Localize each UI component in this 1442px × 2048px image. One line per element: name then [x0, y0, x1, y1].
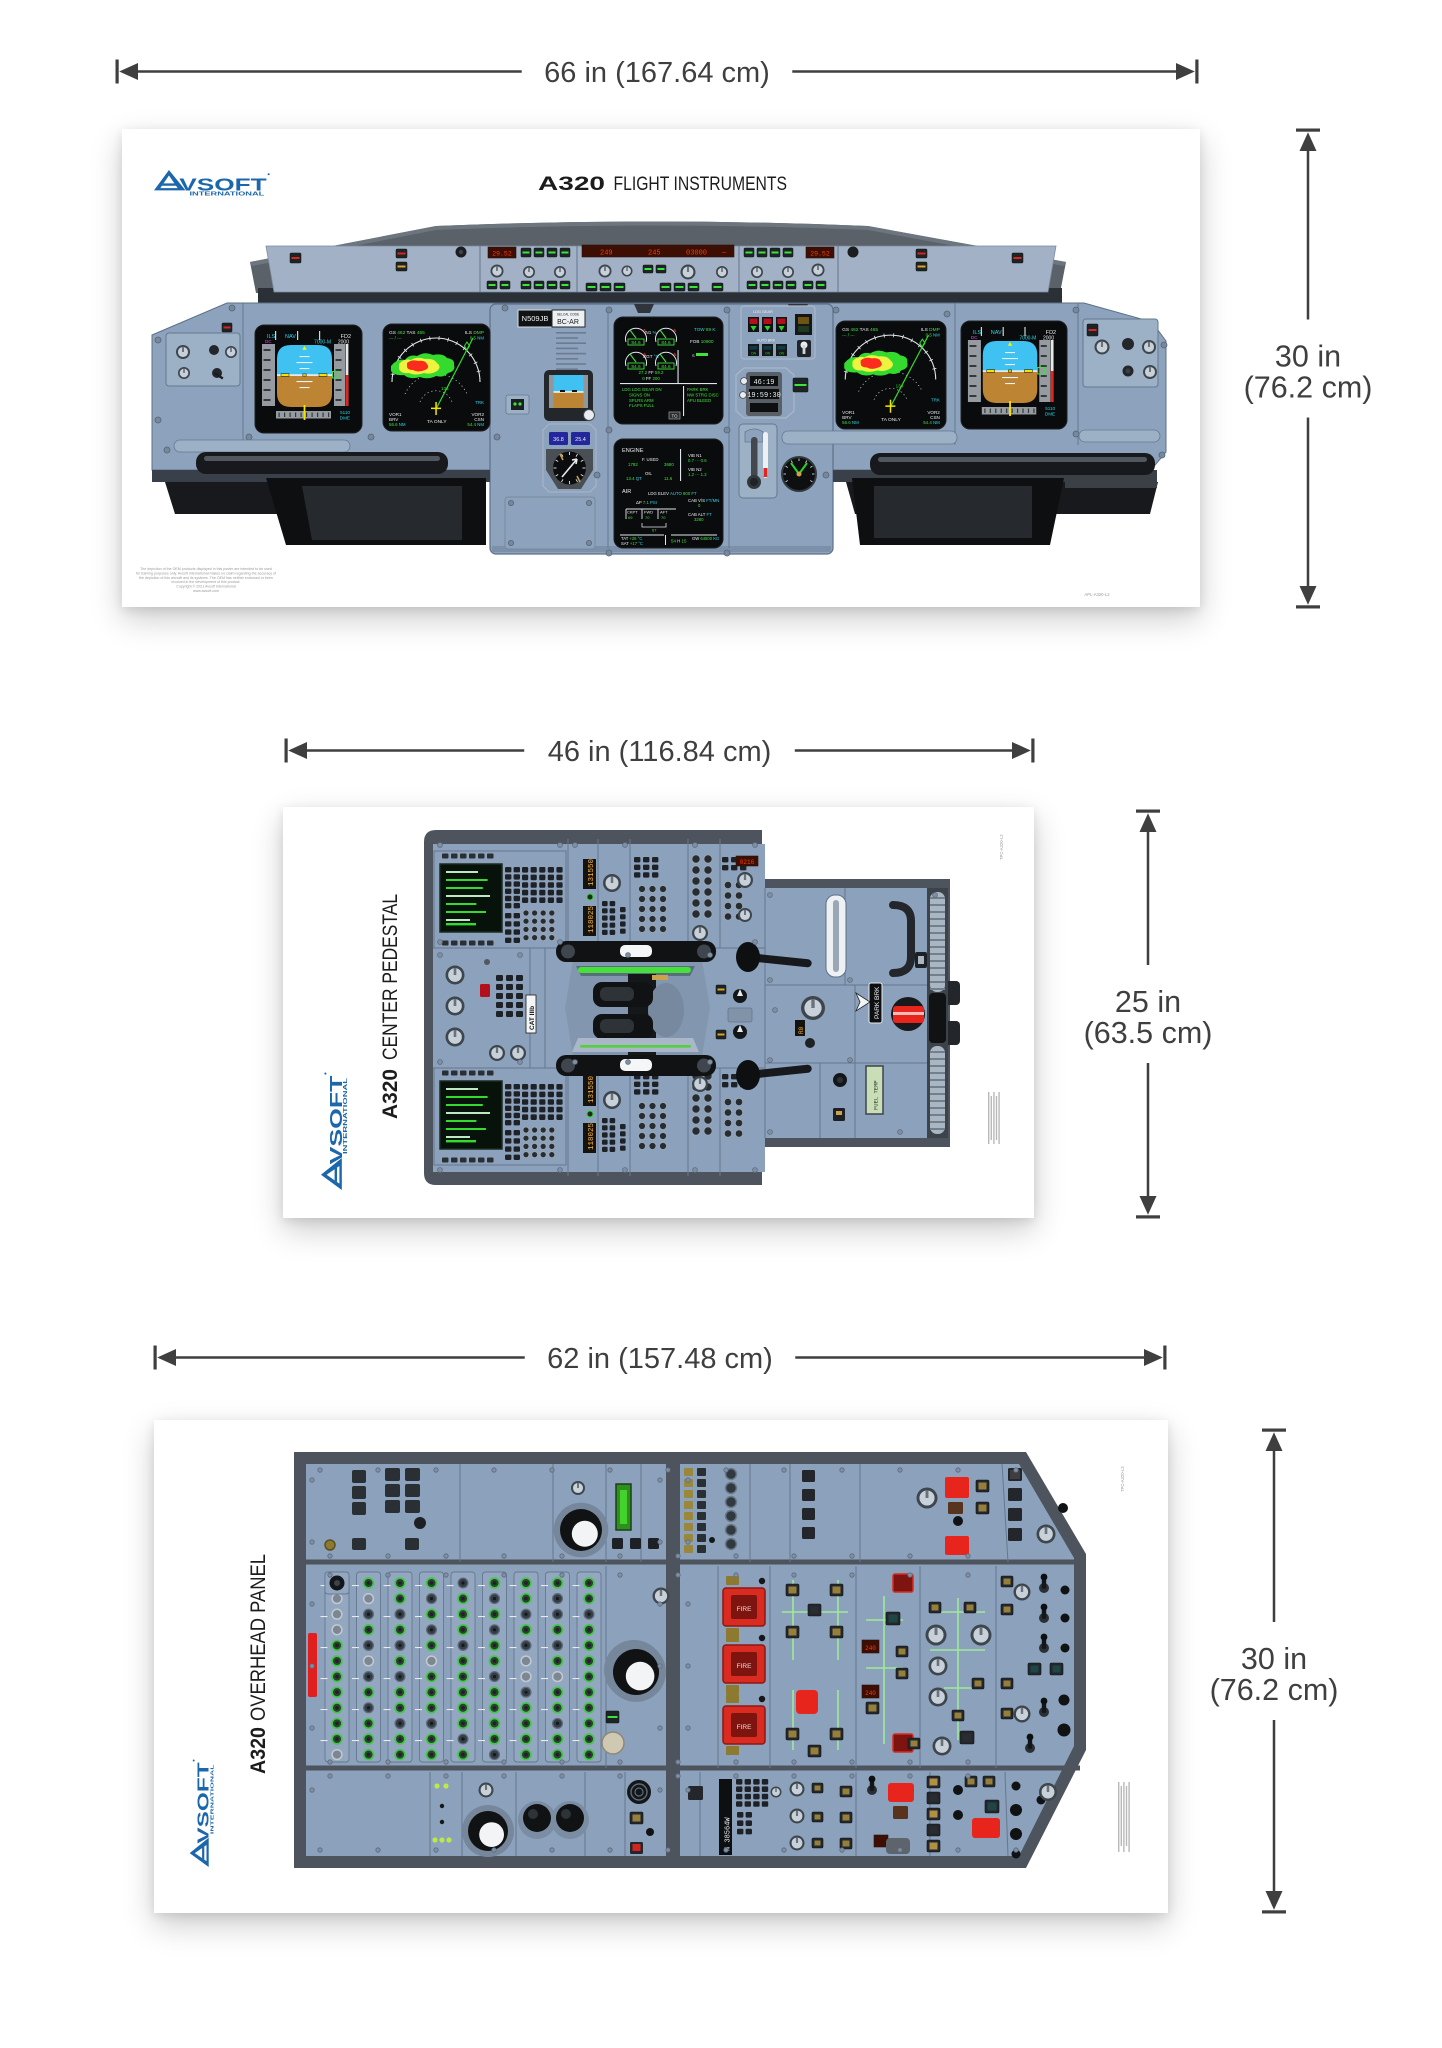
svg-text:30 in: 30 in — [1241, 1642, 1307, 1676]
svg-text:30 in: 30 in — [1275, 340, 1341, 374]
svg-text:(63.5 cm): (63.5 cm) — [1084, 1016, 1213, 1050]
svg-text:62 in (157.48 cm): 62 in (157.48 cm) — [547, 1343, 773, 1375]
svg-text:46 in (116.84 cm): 46 in (116.84 cm) — [548, 736, 772, 768]
svg-text:(76.2 cm): (76.2 cm) — [1210, 1673, 1339, 1707]
svg-text:(76.2 cm): (76.2 cm) — [1244, 371, 1373, 405]
svg-text:25 in: 25 in — [1115, 985, 1181, 1019]
svg-text:66 in (167.64 cm): 66 in (167.64 cm) — [544, 57, 770, 89]
